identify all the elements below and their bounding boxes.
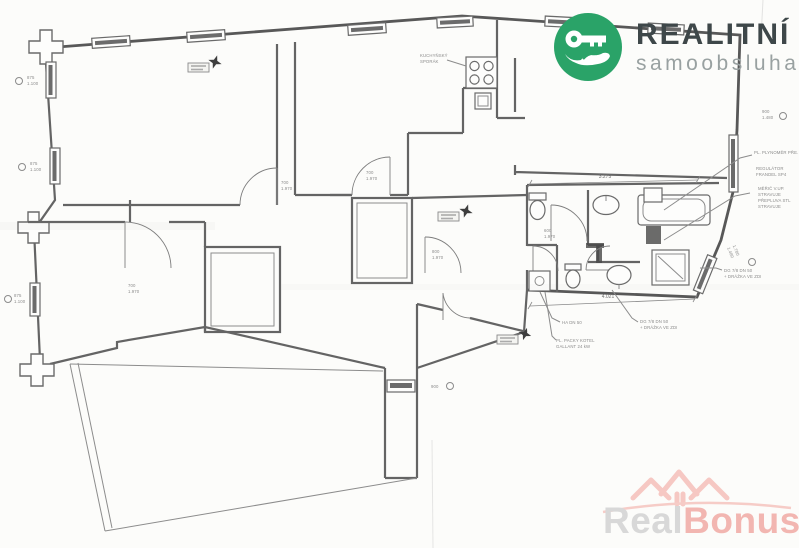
- kitchen-sink: [475, 93, 491, 109]
- gas-note: PL. PLYNOMĚR PŘE.: [754, 150, 798, 155]
- svg-text:REGULÁTOR: REGULÁTOR: [756, 166, 784, 171]
- svg-text:1.970: 1.970: [128, 289, 140, 294]
- door-label: 700: [281, 180, 289, 185]
- watermark-text: RealBonus.cz: [603, 500, 799, 542]
- room-marker-1: [188, 53, 224, 72]
- logo-subtitle: samoobsluha: [636, 53, 799, 74]
- plumbing-note: HA DN 50: [562, 320, 582, 325]
- svg-text:1.970: 1.970: [544, 234, 556, 239]
- door-label: 700: [128, 283, 136, 288]
- realbonus-watermark: RealBonus.cz: [595, 468, 795, 546]
- key-in-hand-icon: [553, 12, 623, 82]
- svg-text:GALLANT 24 kW: GALLANT 24 kW: [556, 344, 591, 349]
- svg-text:1.970: 1.970: [281, 186, 293, 191]
- svg-text:FRANDEL SP4: FRANDEL SP4: [756, 172, 787, 177]
- svg-text:1.100: 1.100: [27, 81, 39, 86]
- svg-text:PŘEPLUVA STL: PŘEPLUVA STL: [758, 198, 791, 203]
- logo-title: REALITNÍ: [636, 20, 799, 50]
- watermark-bonus: Bonus: [683, 500, 799, 541]
- svg-text:+ DRÁŽKA VE ZDI: + DRÁŽKA VE ZDI: [724, 274, 761, 279]
- window-label: 875: [27, 75, 35, 80]
- kitchen-note: KUCHYŇSKÝ: [420, 53, 448, 58]
- svg-text:1.970: 1.970: [432, 255, 444, 260]
- window-label: 900: [762, 109, 770, 114]
- svg-text:1.970: 1.970: [366, 176, 378, 181]
- watermark-real: Real: [603, 500, 683, 541]
- svg-text:1.100: 1.100: [14, 299, 26, 304]
- floor-plan-drawing: KUCHYŇSKÝ SPORÁK 3.275 4.021 1.780 1.480…: [0, 0, 799, 548]
- realitni-logo: REALITNÍ samoobsluha: [553, 12, 799, 82]
- washbasin-1: [593, 196, 619, 215]
- svg-text:1.100: 1.100: [30, 167, 42, 172]
- door-label: 800: [432, 249, 440, 254]
- window-label: 900: [431, 384, 439, 389]
- door-label: 600: [544, 228, 552, 233]
- north-arrow-icon: [457, 202, 475, 220]
- window-label: 875: [14, 293, 22, 298]
- svg-text:1.480: 1.480: [762, 115, 774, 120]
- stove-leader-line: [447, 60, 466, 66]
- floorplan-page: KUCHYŇSKÝ SPORÁK 3.275 4.021 1.780 1.480…: [0, 0, 799, 548]
- shower: [652, 250, 689, 285]
- boiler-note: PL. PACKY KOTEL: [556, 338, 595, 343]
- dim-bath-bottom: 4.021: [602, 294, 615, 300]
- svg-text:MĚŘIČ V.UP.: MĚŘIČ V.UP.: [758, 186, 784, 191]
- dim-bath-top: 3.275: [599, 174, 612, 180]
- svg-text:STRAVUJE: STRAVUJE: [758, 192, 781, 197]
- interior-walls: [28, 20, 727, 478]
- doors: [125, 157, 610, 320]
- plumbing-note: DG 7/8 DN 50: [724, 268, 753, 273]
- room-marker-2: [438, 202, 475, 221]
- dim-circle-icon: [749, 259, 756, 266]
- door-label: 700: [366, 170, 374, 175]
- plumbing-note: DG 7/8 DN 50: [640, 319, 669, 324]
- window-label: 875: [30, 161, 38, 166]
- toilet-1: [529, 193, 546, 220]
- svg-text:SPORÁK: SPORÁK: [420, 59, 439, 64]
- svg-text:STRAVUJE: STRAVUJE: [758, 204, 781, 209]
- yard-outline: [70, 363, 417, 531]
- kitchen-stove: [466, 57, 497, 88]
- svg-text:+ DRÁŽKA VE ZDI: + DRÁŽKA VE ZDI: [640, 325, 677, 330]
